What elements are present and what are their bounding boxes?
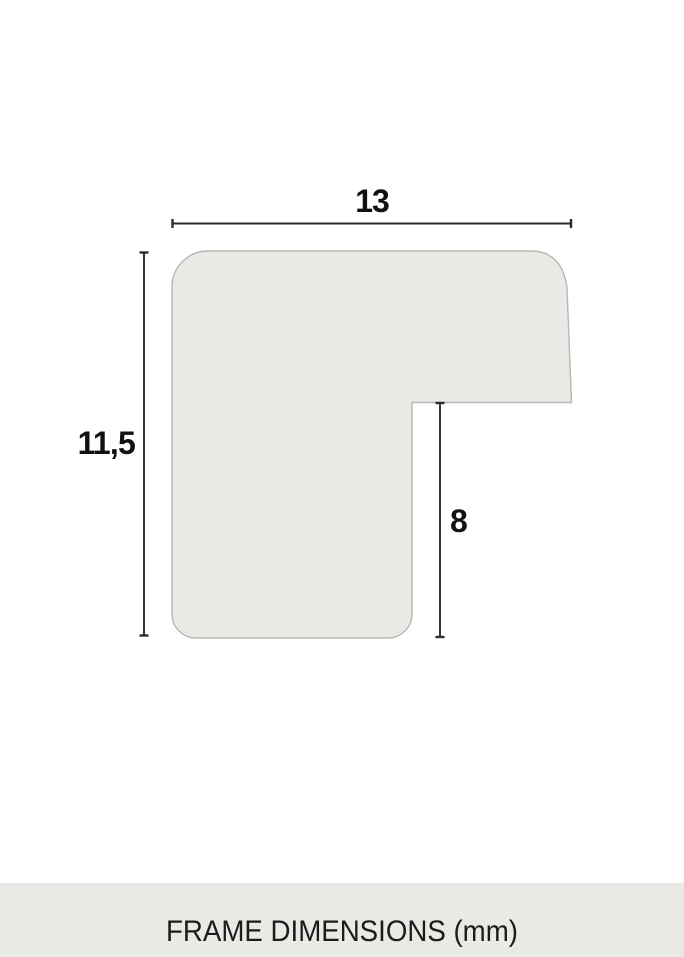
svg-text:FRAME DIMENSIONS (mm): FRAME DIMENSIONS (mm) [166, 915, 518, 948]
svg-text:13: 13 [355, 183, 389, 219]
svg-text:11,5: 11,5 [78, 425, 135, 461]
svg-text:8: 8 [450, 503, 468, 539]
